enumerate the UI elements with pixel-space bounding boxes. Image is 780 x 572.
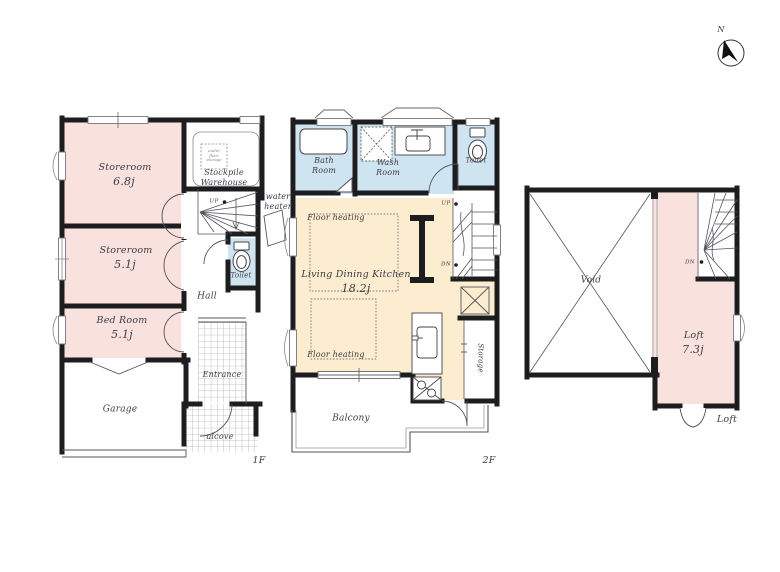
loft-plan <box>527 188 745 427</box>
floor-2f-label: 2F <box>482 455 495 467</box>
toilet-1f-label: Toilet <box>231 272 252 281</box>
balcony-label: Balcony <box>332 413 370 424</box>
balcony-door-arc <box>442 401 467 426</box>
ldk-label: Living Dining Kitchen <box>301 269 410 281</box>
loft-door-arc <box>680 408 706 427</box>
void-label: Void <box>581 275 602 286</box>
up-1f-label: UP <box>209 199 218 206</box>
loft-wall-stub-bottom <box>651 357 658 377</box>
bedroom-label: Bed Room <box>97 315 148 327</box>
entrance-floor <box>198 322 246 402</box>
loft-floor-label: Loft <box>717 414 737 426</box>
floor-heating-b-label: Floor heating <box>307 350 364 360</box>
loft-wall-stub-top <box>651 190 658 199</box>
north-arrow-icon <box>718 40 744 66</box>
stairwell-2f <box>453 198 496 280</box>
up-2f-label: UP <box>441 201 450 208</box>
toilet-icon-1f <box>233 242 250 272</box>
stairs-1f <box>198 189 258 234</box>
bathtub-icon <box>300 129 347 154</box>
door-openings-1f <box>181 193 187 353</box>
loft-window <box>734 315 745 341</box>
loft-room-area: 7.3j <box>682 343 704 357</box>
floor-1f-plan <box>53 112 286 457</box>
floor-plan-drawing <box>0 0 780 572</box>
loft-room-label: Loft <box>684 330 704 342</box>
balcony-outline <box>292 401 488 452</box>
garage-label: Garage <box>103 404 138 415</box>
water-heater-unit <box>264 210 286 246</box>
underfloor-storage-note: under floor storage <box>206 149 221 163</box>
floor-plan-page: Storeroom 6.8j Storeroom 5.1j Bed Room 5… <box>0 0 780 572</box>
entrance-label: Entrance <box>203 370 242 380</box>
stockpile-warehouse-label: Stockpile Warehouse <box>201 168 248 188</box>
storage-label: Storage <box>476 343 485 372</box>
toilet-2f-label: Toilet <box>466 157 487 166</box>
ldk-area: 18.2j <box>342 282 371 296</box>
washroom-label: Wash Room <box>376 158 400 178</box>
dn-loft-label: DN <box>685 260 695 267</box>
kitchen-sink-icon <box>412 313 442 374</box>
bathroom-label: Bath Room <box>312 156 336 176</box>
alcove-floor <box>186 404 258 452</box>
floor-heating-a-label: Floor heating <box>307 213 364 223</box>
vanity-sink-icon <box>395 127 445 155</box>
washing-machine-icon <box>361 127 392 161</box>
storeroom-a-area: 6.8j <box>113 175 135 189</box>
stairwell-loft <box>698 193 734 279</box>
alcove-label: alcove <box>206 432 233 442</box>
north-label: N <box>717 25 724 35</box>
storeroom-a-label: Storeroom <box>99 162 152 174</box>
hall-label: Hall <box>197 291 217 302</box>
dn-2f-label: DN <box>441 262 451 269</box>
storeroom-b-area: 5.1j <box>114 258 136 272</box>
stove-icon <box>413 377 441 400</box>
storeroom-b-label: Storeroom <box>100 245 153 257</box>
bedroom-area: 5.1j <box>111 328 133 342</box>
floor-1f-label: 1F <box>252 455 265 467</box>
water-heater-label: water heater <box>264 192 292 212</box>
